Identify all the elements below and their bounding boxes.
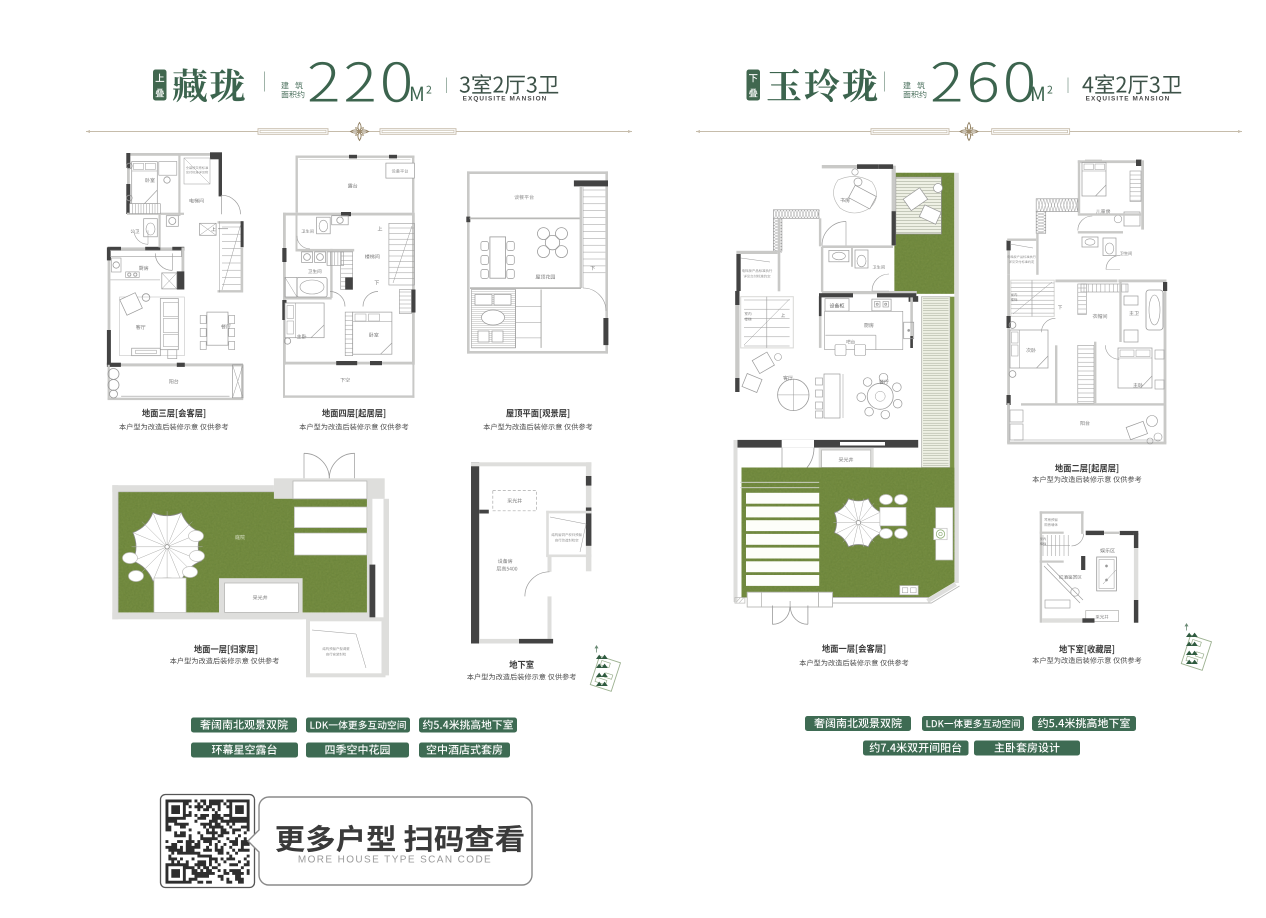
- svg-text:EXQUISITE MANSION: EXQUISITE MANSION: [1086, 96, 1171, 103]
- svg-text:MORE HOUSE TYPE SCAN CODE: MORE HOUSE TYPE SCAN CODE: [298, 855, 492, 866]
- svg-text:EXQUISITE MANSION: EXQUISITE MANSION: [463, 96, 548, 103]
